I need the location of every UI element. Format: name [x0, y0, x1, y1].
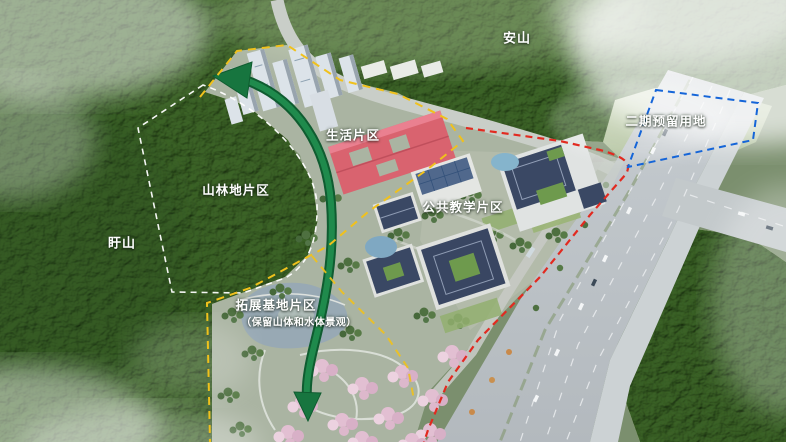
aerial-render: [0, 0, 786, 442]
masterplan-aerial-view: 安山 盱山 二期预留用地 生活片区 山林地片区 公共教学片区 拓展基地片区 （保…: [0, 0, 786, 442]
central-pond: [365, 236, 397, 258]
fountain-pond: [491, 153, 519, 171]
